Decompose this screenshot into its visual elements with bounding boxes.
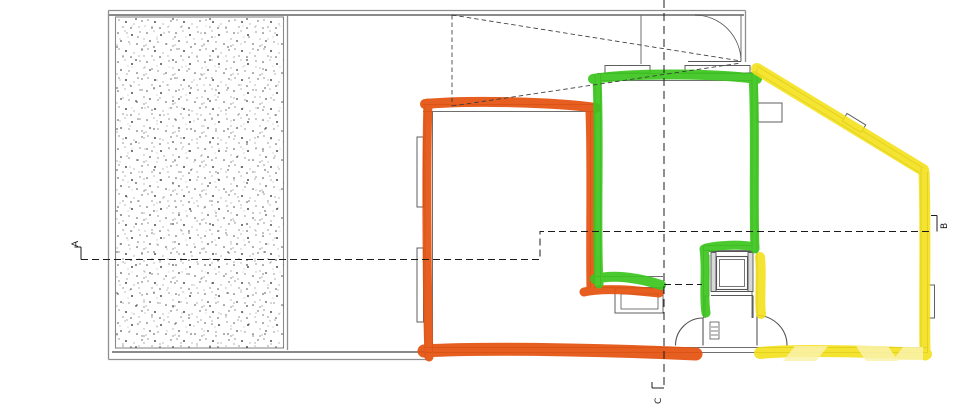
section-label-c: C bbox=[654, 398, 664, 404]
green-elbow-horizontal-stroke bbox=[706, 245, 755, 248]
pillar-block bbox=[758, 103, 782, 122]
vestibule-walls bbox=[705, 296, 753, 319]
section-a-tick bbox=[75, 247, 82, 260]
masonry-hatched-area bbox=[116, 15, 288, 350]
section-label-b: B bbox=[940, 223, 950, 229]
green-right-stroke bbox=[753, 76, 755, 249]
green-highlight bbox=[593, 74, 757, 313]
top-right-door bbox=[641, 15, 741, 64]
green-top-stroke bbox=[593, 74, 757, 79]
orange-bottom-stroke bbox=[424, 349, 696, 354]
entry-grille-box bbox=[710, 322, 719, 339]
top-door-arc bbox=[695, 15, 741, 62]
green-bottom-left-stroke bbox=[595, 277, 661, 285]
masonry-hatch-rect-layer2 bbox=[116, 17, 284, 348]
elevator-shaft bbox=[705, 252, 757, 340]
sight-line-upper-diagonal bbox=[452, 15, 741, 61]
section-line-c: C bbox=[652, 0, 702, 404]
elevator-right-jamb bbox=[748, 253, 753, 292]
yellow-left-lower-stroke bbox=[760, 257, 761, 314]
orange-right-stroke bbox=[590, 113, 591, 290]
yellow-right-stroke bbox=[924, 172, 925, 355]
orange-highlight bbox=[424, 102, 696, 357]
orange-mid-stub-stroke bbox=[584, 290, 659, 293]
elevator-left-jamb bbox=[711, 253, 716, 292]
orange-left-stroke bbox=[427, 103, 429, 357]
elevator-car-inner bbox=[720, 260, 745, 287]
floor-plan-svg: A B C bbox=[0, 0, 960, 415]
section-b-tick bbox=[931, 216, 937, 232]
green-elbow-vertical-stroke bbox=[704, 249, 706, 313]
elevator-car-outer bbox=[717, 257, 748, 290]
section-c-tick bbox=[652, 382, 664, 388]
green-left-stroke bbox=[597, 78, 599, 284]
entry-door-right-arc bbox=[757, 316, 787, 346]
elevator-sill-lines bbox=[711, 292, 753, 296]
section-label-a: A bbox=[71, 240, 81, 247]
orange-top-stroke bbox=[425, 102, 596, 108]
floor-plan-canvas: A B C bbox=[0, 0, 960, 415]
entry-door-left-arc bbox=[676, 318, 704, 346]
entry-grille-lines bbox=[711, 327, 718, 335]
